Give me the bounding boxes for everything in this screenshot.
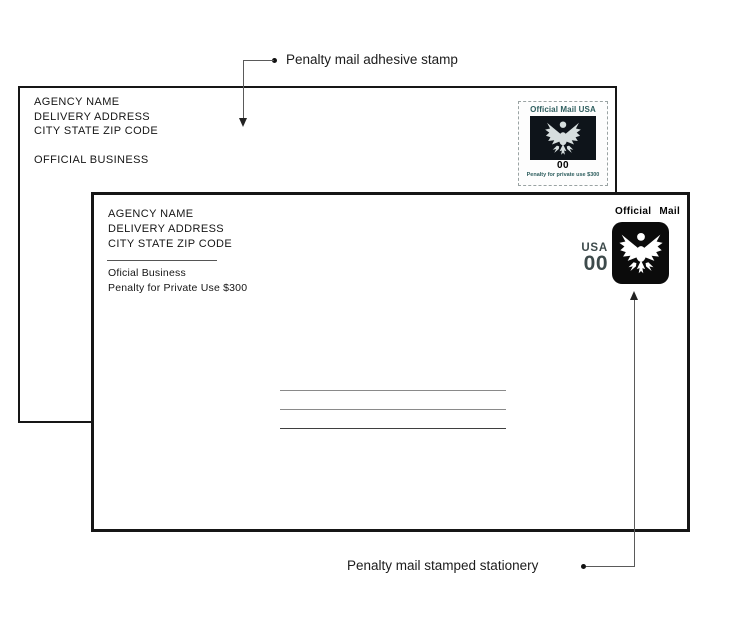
agency-name-text: AGENCY NAME bbox=[108, 207, 232, 222]
connector-line bbox=[243, 60, 274, 61]
stamp-header-text: Official Mail bbox=[615, 206, 680, 217]
connector-line bbox=[586, 566, 635, 567]
stamp-header-text: Official Mail USA bbox=[519, 105, 607, 114]
city-state-zip-text: CITY STATE ZIP CODE bbox=[108, 237, 232, 252]
stamp-eagle-panel bbox=[530, 116, 596, 160]
recipient-address-line bbox=[280, 390, 506, 391]
adhesive-stamp: Official Mail USA 00 Penalty for private… bbox=[518, 101, 608, 186]
separator-line bbox=[107, 260, 217, 261]
stamp-denomination: 00 bbox=[519, 161, 607, 171]
delivery-address-text: DELIVERY ADDRESS bbox=[34, 110, 158, 125]
return-address-block: AGENCY NAME DELIVERY ADDRESS CITY STATE … bbox=[108, 207, 232, 252]
arrowhead-down-icon bbox=[239, 118, 247, 127]
official-business-text: Oficial Business bbox=[108, 266, 247, 281]
connector-line bbox=[634, 298, 635, 567]
stamp-value-block: USA 00 bbox=[542, 243, 608, 274]
envelope-stamped-stationery: AGENCY NAME DELIVERY ADDRESS CITY STATE … bbox=[91, 192, 690, 532]
agency-name-text: AGENCY NAME bbox=[34, 95, 158, 110]
arrowhead-up-icon bbox=[630, 291, 638, 300]
recipient-address-line bbox=[280, 428, 506, 429]
eagle-icon bbox=[618, 228, 664, 278]
imprinted-stamp bbox=[612, 222, 669, 284]
label-penalty-adhesive-stamp: Penalty mail adhesive stamp bbox=[286, 52, 458, 67]
return-address-block: AGENCY NAME DELIVERY ADDRESS CITY STATE … bbox=[34, 95, 158, 167]
connector-line bbox=[243, 60, 244, 119]
stamp-denomination: 00 bbox=[542, 254, 608, 274]
recipient-address-line bbox=[280, 409, 506, 410]
delivery-address-text: DELIVERY ADDRESS bbox=[108, 222, 232, 237]
official-business-text: OFFICIAL BUSINESS bbox=[34, 153, 158, 168]
city-state-zip-text: CITY STATE ZIP CODE bbox=[34, 124, 158, 139]
penalty-mail-diagram: AGENCY NAME DELIVERY ADDRESS CITY STATE … bbox=[0, 0, 744, 628]
label-penalty-stamped-stationery: Penalty mail stamped stationery bbox=[347, 558, 538, 573]
stamp-penalty-text: Penalty for private use $300 bbox=[519, 171, 607, 179]
penalty-private-use-text: Penalty for Private Use $300 bbox=[108, 281, 247, 296]
eagle-icon bbox=[544, 118, 582, 158]
official-business-block: Oficial Business Penalty for Private Use… bbox=[108, 266, 247, 295]
